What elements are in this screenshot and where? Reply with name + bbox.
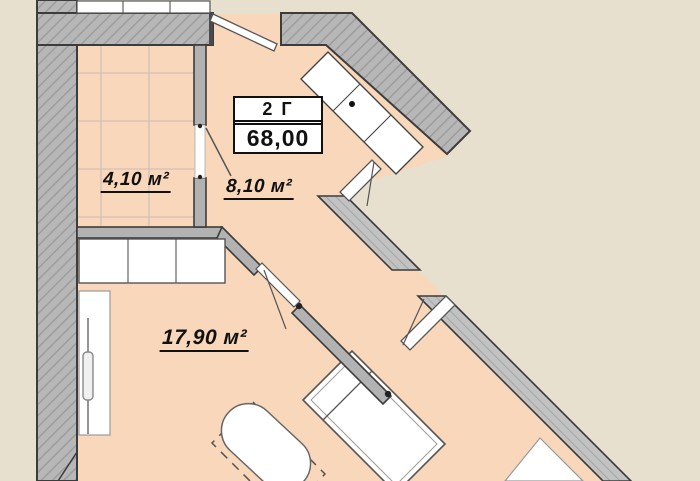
window-row — [77, 1, 210, 13]
unit-type-label: 2 Г — [235, 98, 321, 122]
floor-plan-page: 2 Г 68,00 4,10 м² 8,10 м² 17,90 м² — [0, 0, 700, 481]
floor-plan-drawing — [0, 0, 700, 481]
room-area-label-hallway: 8,10 м² — [224, 176, 295, 200]
room-area-label-small: 4,10 м² — [101, 169, 172, 193]
unit-info-box: 2 Г 68,00 — [233, 96, 323, 154]
unit-total-area: 68,00 — [235, 123, 321, 152]
radiator — [79, 291, 110, 435]
room-area-label-living: 17,90 м² — [160, 326, 250, 352]
cabinet-row — [79, 239, 225, 283]
